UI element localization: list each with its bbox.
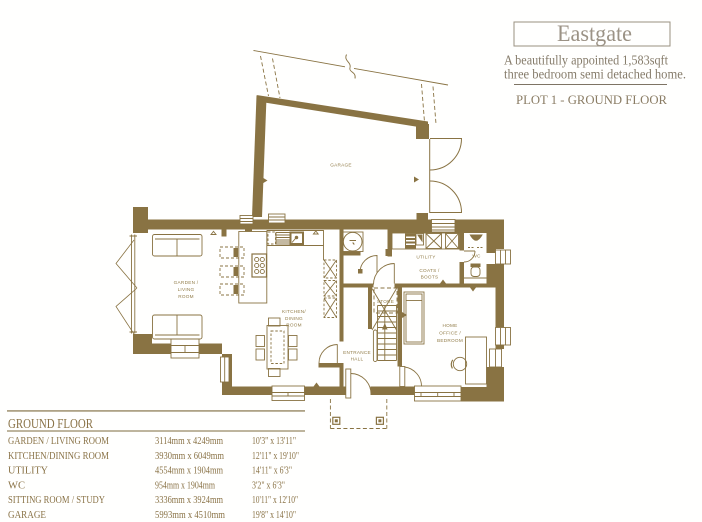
svg-text:3336mm x 3924mm: 3336mm x 3924mm [155,495,223,506]
svg-text:GARAGE: GARAGE [8,510,46,521]
svg-text:4554mm x 1904mm: 4554mm x 1904mm [155,466,223,477]
svg-text:3114mm x 4249mm: 3114mm x 4249mm [155,436,223,447]
svg-text:SITTING ROOM / STUDY: SITTING ROOM / STUDY [8,495,105,506]
svg-text:10'3" x 13'11": 10'3" x 13'11" [252,436,296,447]
svg-text:HOME: HOME [442,323,457,328]
svg-text:3'2" x 6'3": 3'2" x 6'3" [252,480,285,491]
svg-text:3930mm x 6049mm: 3930mm x 6049mm [155,451,224,462]
svg-text:14'11" x 6'3": 14'11" x 6'3" [252,466,292,477]
svg-text:GARDEN /: GARDEN / [174,280,199,285]
svg-text:three bedroom semi detached ho: three bedroom semi detached home. [504,68,686,83]
svg-text:10'11" x 12'10": 10'11" x 12'10" [252,495,298,506]
svg-text:19'8" x 14'10": 19'8" x 14'10" [252,510,296,521]
svg-text:5993mm x 4510mm: 5993mm x 4510mm [155,510,225,521]
svg-text:Eastgate: Eastgate [557,21,632,46]
svg-text:WC: WC [472,254,481,259]
svg-text:BOOTS: BOOTS [421,275,439,280]
svg-text:DINING: DINING [285,316,303,321]
svg-text:12'11" x 19'10": 12'11" x 19'10" [252,451,299,462]
svg-text:ROOM: ROOM [286,323,302,328]
svg-text:PLOT 1 - GROUND FLOOR: PLOT 1 - GROUND FLOOR [516,92,667,107]
svg-text:ENTRANCE: ENTRANCE [343,350,371,355]
svg-text:COATS /: COATS / [419,268,440,273]
svg-text:GARAGE: GARAGE [330,163,352,168]
svg-text:STORE: STORE [377,299,394,304]
svg-text:A beautifully appointed 1,583s: A beautifully appointed 1,583sqft [504,54,668,69]
svg-text:GROUND FLOOR: GROUND FLOOR [8,416,93,431]
svg-text:GARDEN / LIVING ROOM: GARDEN / LIVING ROOM [8,436,110,447]
svg-text:ROOM: ROOM [178,294,194,299]
svg-text:LIVING: LIVING [178,287,195,292]
svg-text:HALL: HALL [351,357,364,362]
svg-text:UTILITY: UTILITY [416,255,436,260]
svg-text:UTILITY: UTILITY [8,466,48,477]
svg-text:KITCHEN/DINING ROOM: KITCHEN/DINING ROOM [8,451,110,462]
svg-text:WC: WC [8,480,25,491]
svg-text:954mm x 1904mm: 954mm x 1904mm [155,480,215,491]
svg-text:KITCHEN/: KITCHEN/ [282,309,306,314]
svg-text:BEDROOM: BEDROOM [437,338,463,343]
svg-text:OFFICE /: OFFICE / [439,331,461,336]
